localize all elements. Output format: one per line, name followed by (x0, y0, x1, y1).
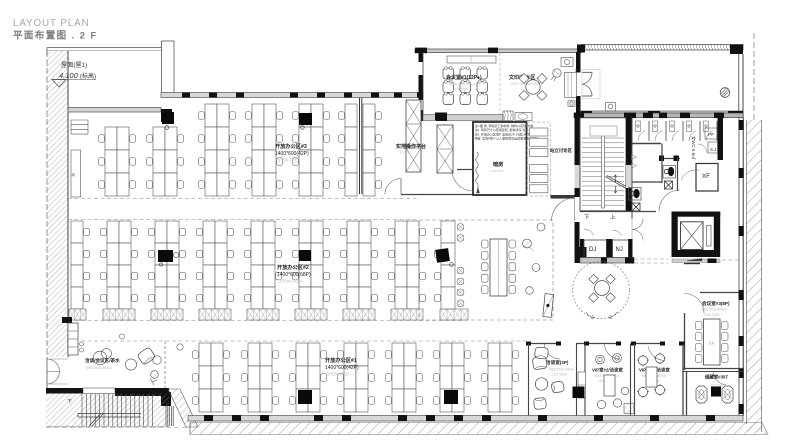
svg-text:架: 架 (72, 172, 76, 177)
svg-text:4.100: 4.100 (59, 71, 79, 80)
svg-text:OPEN AREA: OPEN AREA (326, 372, 350, 377)
svg-text:开放办公区#1: 开放办公区#1 (325, 356, 357, 364)
svg-text:D-ROOM: D-ROOM (491, 169, 504, 173)
svg-text:PF: PF (708, 132, 714, 138)
svg-text:NJ: NJ (616, 247, 623, 253)
svg-text:预留. 实际P数个以人事招聘及运营需求核定实际: 预留. 实际P数个以人事招聘及运营需求核定实际 (475, 136, 539, 141)
svg-text:MEETING AREA: MEETING AREA (86, 366, 112, 370)
svg-text:MEETING AREA: MEETING AREA (549, 368, 575, 372)
svg-text:洽谈室(3P): 洽谈室(3P) (546, 359, 569, 366)
svg-text:开放办公区#2: 开放办公区#2 (277, 263, 309, 271)
svg-text:19.5 SQM: 19.5 SQM (704, 313, 719, 317)
svg-text:LAYOUT PLAN: LAYOUT PLAN (13, 18, 90, 29)
svg-text:开放办公区#3: 开放办公区#3 (275, 142, 307, 150)
svg-text:女WC 6.6㎡: 女WC 6.6㎡ (690, 136, 697, 160)
svg-text:1400*600(42P): 1400*600(42P) (325, 365, 359, 371)
svg-text:实地操作平台: 实地操作平台 (396, 143, 426, 150)
svg-text:DJ: DJ (589, 247, 596, 253)
svg-text:OPEN AREA: OPEN AREA (276, 158, 300, 163)
svg-text:VIP室#2/洽谈室: VIP室#2/洽谈室 (592, 367, 623, 374)
svg-text:OPEN AREA: OPEN AREA (278, 279, 302, 284)
svg-text:XF: XF (702, 173, 710, 180)
svg-text:MEETING AREA: MEETING AREA (701, 308, 727, 312)
svg-text:暗房: 暗房 (493, 160, 503, 168)
svg-text:MEETING ROOM: MEETING ROOM (450, 83, 477, 87)
svg-text:1400*600(42P): 1400*600(42P) (275, 151, 309, 157)
svg-text:下: 下 (584, 214, 590, 221)
svg-text:会议室#1(12P+): 会议室#1(12P+) (445, 74, 482, 81)
svg-text:30.5 SQM: 30.5 SQM (453, 88, 468, 92)
svg-text:站立讨论区: 站立讨论区 (550, 147, 573, 154)
svg-text:洽谈/会议区/茶水: 洽谈/会议区/茶水 (85, 357, 120, 364)
svg-text:上: 上 (610, 213, 616, 221)
svg-text:(标高): (标高) (80, 72, 96, 80)
svg-text:13.5 SQM: 13.5 SQM (552, 373, 567, 377)
svg-text:屋面(屋1): 屋面(屋1) (61, 62, 87, 69)
svg-text:1400*600(68P): 1400*600(68P) (277, 272, 311, 278)
svg-text:会桌: 会桌 (709, 341, 715, 345)
svg-text:下: 下 (67, 399, 72, 405)
svg-text:平面布置图 . 2 F: 平面布置图 . 2 F (13, 30, 98, 42)
svg-text:会议室#3(8P): 会议室#3(8P) (701, 300, 730, 307)
svg-text:S.J: S.J (710, 147, 716, 152)
svg-text:STAGE: STAGE (400, 151, 411, 155)
